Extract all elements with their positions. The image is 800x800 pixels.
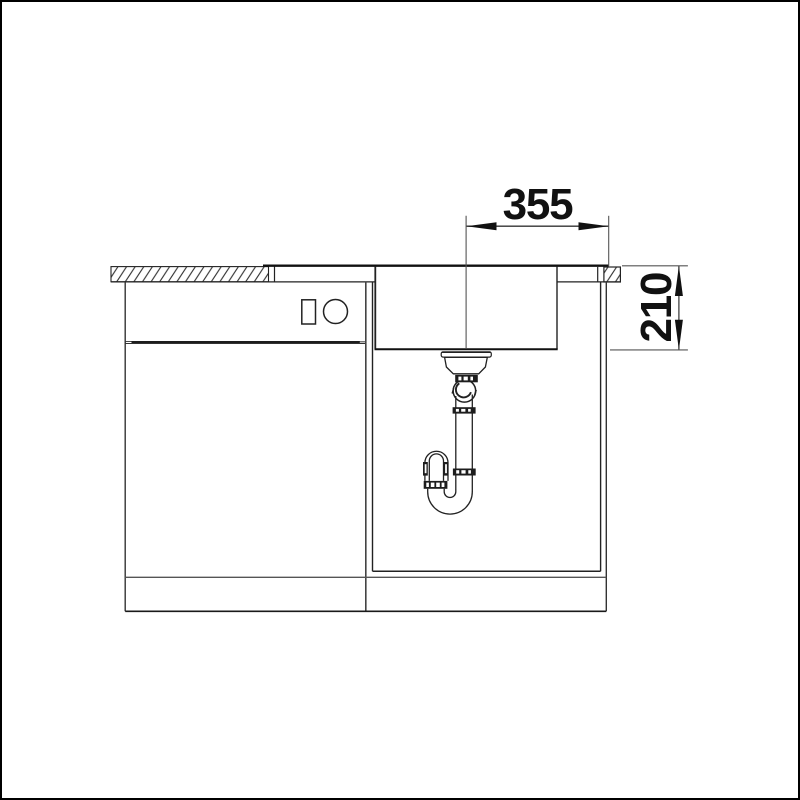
svg-text:210: 210 xyxy=(632,273,681,343)
svg-text:355: 355 xyxy=(503,180,574,229)
